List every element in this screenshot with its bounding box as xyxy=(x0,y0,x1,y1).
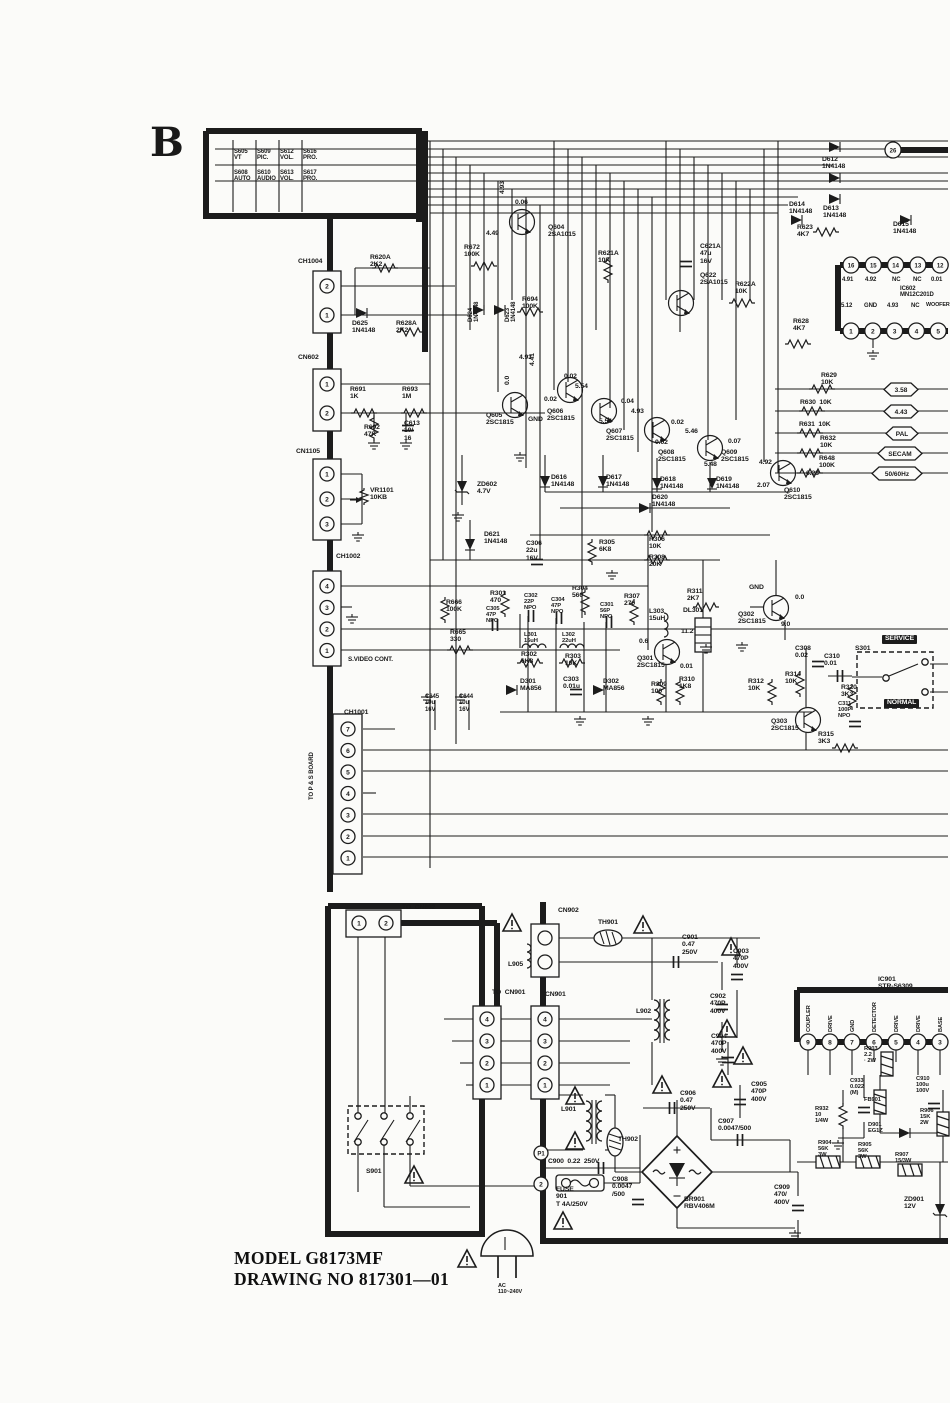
svg-text:4: 4 xyxy=(346,791,350,798)
r307-resistor xyxy=(630,599,638,625)
svg-text:3.58: 3.58 xyxy=(895,387,908,394)
warn-12 xyxy=(458,1250,476,1267)
svg-text:3: 3 xyxy=(325,605,329,612)
connector-layer: 2112123432176543211243214321P12161514131… xyxy=(313,142,948,1191)
fb901-bead xyxy=(874,1090,886,1114)
c302-cap xyxy=(529,610,534,622)
r303-resistor xyxy=(559,659,585,667)
r694-resistor xyxy=(517,308,543,316)
d625-diode xyxy=(356,308,367,318)
q622-transistor xyxy=(669,291,694,316)
d616-diode xyxy=(540,476,550,487)
l902-transformer xyxy=(654,999,670,1043)
ic602-bottom-pins-pin-3: 3 xyxy=(887,323,903,339)
d612a-diode xyxy=(829,142,840,152)
gnd-9 xyxy=(574,716,586,725)
ic901-pins-pin-7: 7 xyxy=(844,1034,860,1050)
ic901-pins-pin-3: 3 xyxy=(932,1034,948,1050)
s301-common-contact xyxy=(883,675,889,681)
tag-secam: SECAM xyxy=(878,447,922,460)
svg-text:4: 4 xyxy=(325,583,329,590)
ic901-pins: 9876543 xyxy=(800,1034,948,1050)
ic602-top-pins-pin-14: 14 xyxy=(888,257,904,273)
ch1001-conn-pin-1: 1 xyxy=(341,851,355,865)
th902-thermistor xyxy=(607,1128,623,1156)
r932-resistor xyxy=(839,1103,847,1129)
zd602-zener xyxy=(455,481,469,494)
q606-transistor xyxy=(558,378,583,403)
svg-text:1: 1 xyxy=(485,1082,489,1089)
s901-pole3-bot xyxy=(407,1139,413,1145)
warn-4 xyxy=(718,1020,736,1037)
warn-11 xyxy=(405,1166,423,1183)
ch1001-conn-pin-6: 6 xyxy=(341,744,355,758)
svg-text:SECAM: SECAM xyxy=(888,451,911,458)
svg-text:1: 1 xyxy=(325,648,329,655)
schematic-page: 2112123432176543211243214321P12161514131… xyxy=(0,0,950,1403)
d617-diode xyxy=(598,476,608,487)
l302-coil xyxy=(560,644,584,648)
gnd-15 xyxy=(789,1230,801,1239)
cn602-conn-pin-2: 2 xyxy=(320,406,334,420)
r310-resistor xyxy=(676,679,684,705)
q607-transistor xyxy=(592,399,617,424)
model-number: MODEL G8173MF xyxy=(234,1248,449,1269)
c933-cap xyxy=(858,1108,870,1113)
to-cn602-conn: 12 xyxy=(346,910,401,937)
to-cn901-conn-pin-1: 1 xyxy=(480,1078,494,1092)
r302-resistor xyxy=(517,659,543,667)
cn602-conn: 12 xyxy=(313,369,341,431)
r903-resistor xyxy=(881,1052,893,1076)
cn901-conn-pin-3: 3 xyxy=(538,1034,552,1048)
c304-cap xyxy=(557,612,562,624)
cn1105-conn-pin-1: 1 xyxy=(320,467,334,481)
cn1105-conn-pin-3: 3 xyxy=(320,517,334,531)
s901-pole3-top xyxy=(407,1113,413,1119)
gnd-17 xyxy=(352,532,364,541)
ch1004-conn-pin-2: 2 xyxy=(320,279,334,293)
svg-text:9: 9 xyxy=(806,1039,810,1046)
c909-cap xyxy=(792,1206,804,1211)
ic901-pins-pin-9: 9 xyxy=(800,1034,816,1050)
warn-6 xyxy=(653,1076,671,1093)
ic602-top-pins: 1615141312 xyxy=(843,257,948,273)
svg-text:6: 6 xyxy=(872,1039,876,1046)
svg-text:3: 3 xyxy=(346,812,350,819)
s901-pole2-bot xyxy=(381,1139,387,1145)
to-cn901-conn-pin-3: 3 xyxy=(480,1034,494,1048)
c308-cap xyxy=(812,662,824,667)
ic602-bottom-pins-pin-5: 5 xyxy=(930,323,946,339)
c908-cap xyxy=(632,1200,644,1205)
svg-text:2: 2 xyxy=(325,496,329,503)
svg-text:6: 6 xyxy=(346,748,350,755)
to-cn901-conn: 4321 xyxy=(473,1006,501,1099)
svg-text:2: 2 xyxy=(384,920,388,927)
svg-text:4: 4 xyxy=(543,1016,547,1023)
svg-text:12: 12 xyxy=(937,263,944,269)
ic901-pins-pin-4: 4 xyxy=(910,1034,926,1050)
svg-text:2: 2 xyxy=(485,1060,489,1067)
fuse901-fuse xyxy=(556,1175,604,1191)
r906-resistor xyxy=(937,1112,949,1136)
warn-2 xyxy=(634,916,652,933)
svg-text:4.43: 4.43 xyxy=(895,409,908,416)
th901-thermistor xyxy=(594,930,622,946)
cn1105-conn: 123 xyxy=(313,459,341,540)
c903-cap xyxy=(731,975,743,980)
ic901-pins-pin-8: 8 xyxy=(822,1034,838,1050)
ch1004-conn: 21 xyxy=(313,271,341,333)
ic602-bottom-pins-pin-4: 4 xyxy=(908,323,924,339)
r320-resistor xyxy=(848,684,856,710)
cn901-conn-pin-2: 2 xyxy=(538,1056,552,1070)
r904-resistor xyxy=(816,1156,840,1168)
q605-transistor xyxy=(503,393,528,418)
gnd-7 xyxy=(421,694,433,703)
c613-cap xyxy=(402,426,414,431)
svg-text:7: 7 xyxy=(346,726,350,733)
ic901-pins-pin-5: 5 xyxy=(888,1034,904,1050)
cn901-conn-pin-1: 1 xyxy=(538,1078,552,1092)
ic602-top-pins-pin-12: 12 xyxy=(932,257,948,273)
ch1001-conn-pin-4: 4 xyxy=(341,787,355,801)
cn902-conn-pin-2 xyxy=(538,955,552,969)
d901-diode xyxy=(899,1128,910,1138)
to-cn901-conn-pin-2: 2 xyxy=(480,1056,494,1070)
to-cn901-conn-pin-4: 4 xyxy=(480,1012,494,1026)
d619-diode xyxy=(707,478,717,489)
q303-transistor xyxy=(796,708,821,733)
ch1002-conn-pin-3: 3 xyxy=(320,601,334,615)
d624-diode xyxy=(473,305,484,315)
d614-diode xyxy=(791,215,802,225)
svg-text:3: 3 xyxy=(325,521,329,528)
r301-resistor xyxy=(501,591,509,617)
svg-text:3: 3 xyxy=(485,1038,489,1045)
tag-443: 4.43 xyxy=(884,405,918,418)
s301-contact-b xyxy=(922,689,928,695)
r628-resistor xyxy=(785,340,811,348)
title-block: MODEL G8173MF DRAWING NO 817301—01 xyxy=(234,1248,449,1290)
ch1001-conn-pin-2: 2 xyxy=(341,830,355,844)
svg-text:1: 1 xyxy=(543,1082,547,1089)
svg-text:26: 26 xyxy=(890,148,897,154)
gnd-5 xyxy=(346,614,358,623)
gnd-16 xyxy=(867,350,879,359)
r314-resistor xyxy=(796,671,804,697)
svg-text:2: 2 xyxy=(543,1060,547,1067)
gnd-1 xyxy=(514,452,526,461)
gnd-11 xyxy=(736,642,748,651)
r315-resistor xyxy=(832,744,858,752)
warn-9 xyxy=(566,1132,584,1149)
warn-5 xyxy=(734,1047,752,1064)
pin-26-tag: 26 xyxy=(885,142,901,158)
r907-resistor xyxy=(898,1164,922,1176)
r305-resistor xyxy=(588,539,596,565)
c301-cap xyxy=(607,616,612,628)
svg-text:5: 5 xyxy=(894,1039,898,1046)
l303-coil xyxy=(664,613,668,637)
svg-text:5: 5 xyxy=(936,328,940,335)
br901-bridge xyxy=(642,1136,712,1208)
cn902-conn xyxy=(531,924,559,977)
ch1004-conn-pin-1: 1 xyxy=(320,308,334,322)
to-cn602-conn-pin-2: 2 xyxy=(379,916,393,930)
gnd-13 xyxy=(832,1140,844,1149)
ic602-top-pins-pin-15: 15 xyxy=(865,257,881,273)
s901-pole1-top xyxy=(355,1113,361,1119)
svg-text:4: 4 xyxy=(915,328,919,335)
to-cn602-conn-pin-1: 1 xyxy=(352,916,366,930)
gnd-3 xyxy=(368,440,380,449)
cn901-conn-pin-4: 4 xyxy=(538,1012,552,1026)
q609-transistor xyxy=(698,436,723,461)
svg-text:16: 16 xyxy=(848,263,855,269)
r666-resistor xyxy=(441,597,449,623)
svg-text:2: 2 xyxy=(325,626,329,633)
warn-1 xyxy=(503,914,521,931)
ch1001-conn-pin-3: 3 xyxy=(341,808,355,822)
r621a-resistor xyxy=(604,257,612,283)
q608-transistor xyxy=(645,418,670,443)
gnd-2 xyxy=(452,512,464,521)
signal-tag-layer: 3.584.43PALSECAM50/60Hz xyxy=(872,383,922,480)
ch1002-conn-pin-4: 4 xyxy=(320,579,334,593)
ch1002-conn-pin-1: 1 xyxy=(320,644,334,658)
svg-text:1: 1 xyxy=(357,920,361,927)
svg-text:8: 8 xyxy=(828,1039,832,1046)
svg-text:2: 2 xyxy=(325,283,329,290)
r623-resistor xyxy=(813,228,839,236)
ic602-bottom-pins-pin-2: 2 xyxy=(865,323,881,339)
c621a-cap xyxy=(680,262,692,267)
d621-diode xyxy=(465,539,475,550)
cn902-conn-pin-1 xyxy=(538,931,552,945)
r309-resistor xyxy=(657,679,665,705)
svg-text:50/60Hz: 50/60Hz xyxy=(885,471,910,478)
d620-diode xyxy=(639,503,650,513)
cn602-conn-pin-1: 1 xyxy=(320,377,334,391)
c910-cap xyxy=(928,1104,940,1109)
r622a-resistor xyxy=(729,299,755,307)
svg-text:2: 2 xyxy=(539,1181,543,1188)
svg-text:1: 1 xyxy=(325,381,329,388)
svg-text:PAL: PAL xyxy=(896,431,909,438)
svg-text:4: 4 xyxy=(485,1016,489,1023)
r628a-resistor xyxy=(397,328,423,336)
r312-resistor xyxy=(768,679,776,705)
svg-text:1: 1 xyxy=(325,312,329,319)
svg-text:13: 13 xyxy=(915,263,922,269)
d623-diode xyxy=(494,305,505,315)
c311-cap xyxy=(849,722,861,727)
warn-10 xyxy=(554,1212,572,1229)
gnd-8 xyxy=(455,694,467,703)
d615-diode xyxy=(900,215,911,225)
svg-text:2: 2 xyxy=(871,328,875,335)
ic602-bottom-pins-pin-1: 1 xyxy=(843,323,859,339)
schematic-canvas: 2112123432176543211243214321P12161514131… xyxy=(0,0,950,1403)
ch1001-conn-pin-7: 7 xyxy=(341,722,355,736)
pin-26-tag-pin-26: 26 xyxy=(885,142,901,158)
svg-text:3: 3 xyxy=(893,328,897,335)
r311-resistor xyxy=(693,603,719,611)
l901-transformer xyxy=(586,1100,602,1144)
ic602-top-pins-pin-16: 16 xyxy=(843,257,859,273)
ch1002-conn-pin-2: 2 xyxy=(320,622,334,636)
zd901-zener xyxy=(933,1204,947,1217)
gnd-6 xyxy=(606,570,618,579)
svg-text:1: 1 xyxy=(849,328,853,335)
d618-diode xyxy=(652,478,662,489)
c306-cap xyxy=(531,560,543,565)
d613-diode xyxy=(829,194,840,204)
ic602-top-pins-pin-13: 13 xyxy=(910,257,926,273)
svg-text:1: 1 xyxy=(325,471,329,478)
s301-contact-a xyxy=(922,659,928,665)
svg-text:14: 14 xyxy=(892,263,899,269)
drawing-number: DRAWING NO 817301—01 xyxy=(234,1269,449,1290)
d301-diode xyxy=(506,685,517,695)
cn901-conn: 4321 xyxy=(531,1006,559,1099)
svg-text:5: 5 xyxy=(346,769,350,776)
q302-transistor xyxy=(764,596,789,621)
s901-pole1-bot xyxy=(355,1139,361,1145)
p1-pins-pin-2: 2 xyxy=(534,1177,548,1191)
svg-text:P1: P1 xyxy=(537,1151,545,1157)
cn1105-conn-pin-2: 2 xyxy=(320,492,334,506)
svg-text:15: 15 xyxy=(870,263,877,269)
tag-pal: PAL xyxy=(886,427,918,440)
svg-text:3: 3 xyxy=(938,1039,942,1046)
ch1001-conn: 7654321 xyxy=(333,714,362,874)
svg-text:2: 2 xyxy=(325,410,329,417)
c303-cap xyxy=(570,690,582,695)
gnd-4 xyxy=(400,440,412,449)
svg-text:4: 4 xyxy=(916,1039,920,1046)
p1-pins-pin-P1: P1 xyxy=(534,1146,548,1160)
tag-5060: 50/60Hz xyxy=(872,467,922,480)
d302-diode xyxy=(593,685,604,695)
r304-resistor xyxy=(581,589,589,615)
l301-coil xyxy=(522,644,546,648)
tag-358: 3.58 xyxy=(884,383,918,396)
gnd-10 xyxy=(642,716,654,725)
svg-text:7: 7 xyxy=(850,1039,854,1046)
ic901-pins-pin-6: 6 xyxy=(866,1034,882,1050)
ch1002-conn: 4321 xyxy=(313,571,341,666)
ac-plug xyxy=(481,1230,533,1278)
r905-resistor xyxy=(856,1156,880,1168)
s901-pole2-top xyxy=(381,1113,387,1119)
ic602-bottom-pins: 12345 xyxy=(843,323,946,339)
vr1101-pot xyxy=(350,488,368,505)
svg-text:3: 3 xyxy=(543,1038,547,1045)
svg-text:2: 2 xyxy=(346,834,350,841)
ch1001-conn-pin-5: 5 xyxy=(341,765,355,779)
svg-text:1: 1 xyxy=(346,855,350,862)
q301-transistor xyxy=(655,640,680,665)
c902-cap xyxy=(716,1005,728,1010)
